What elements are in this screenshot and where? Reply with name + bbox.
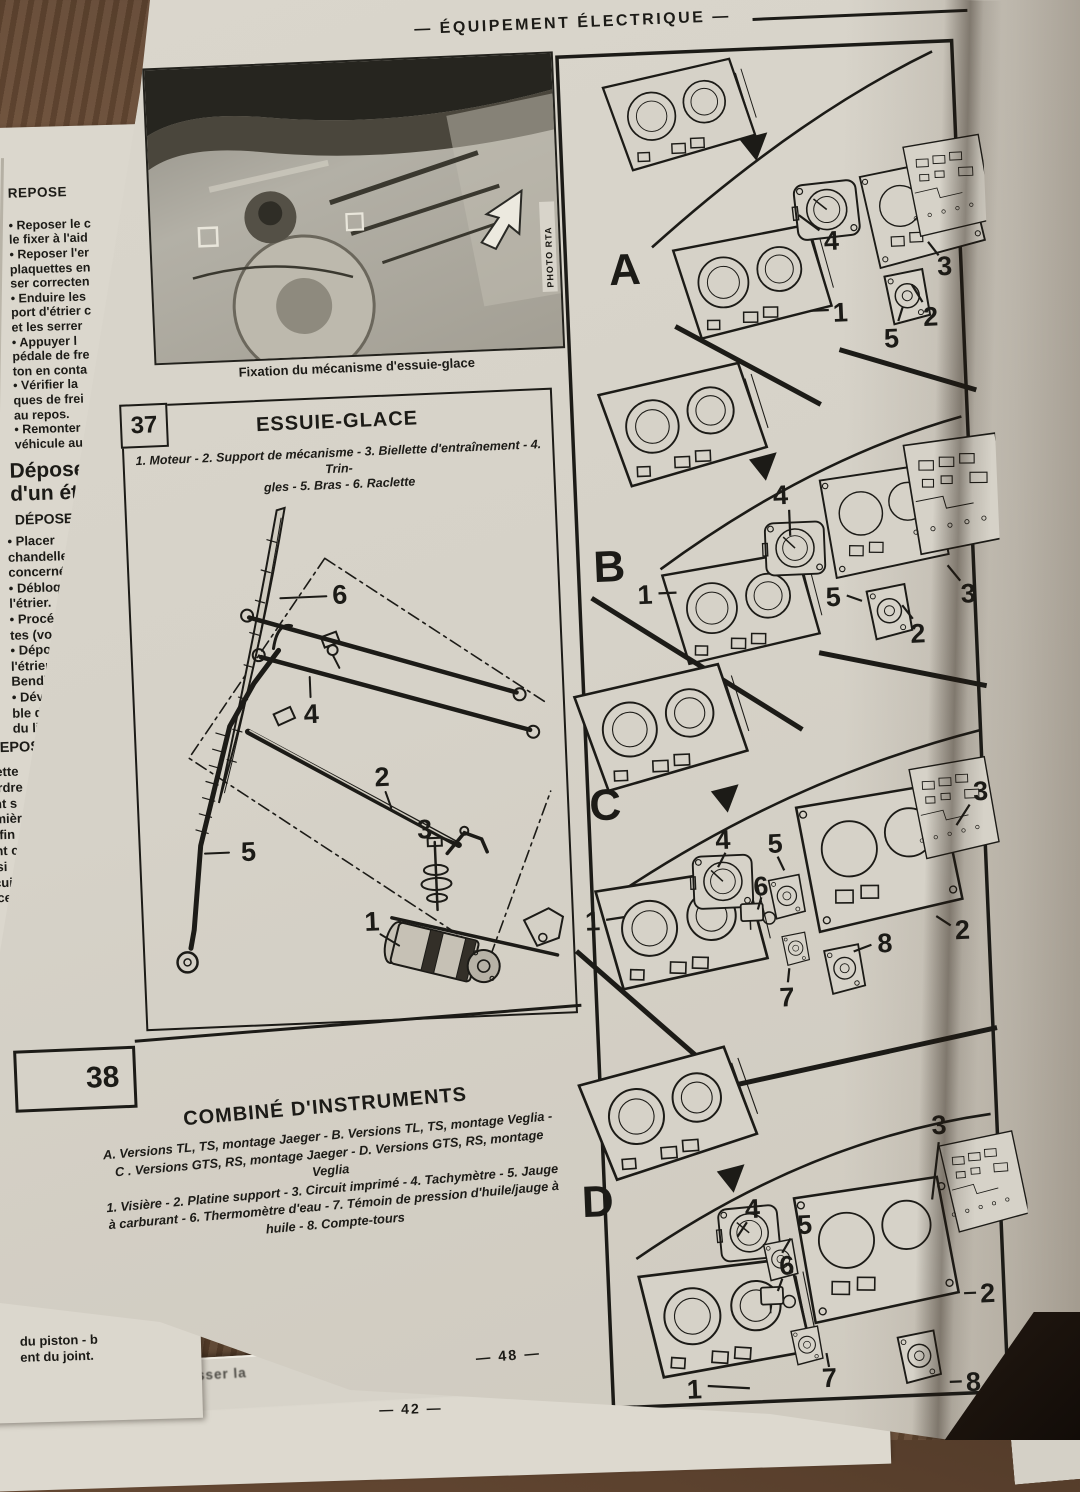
B-label-1: 1 xyxy=(637,580,653,611)
D-label-7: 7 xyxy=(821,1363,837,1394)
figure-38-number: 38 xyxy=(13,1046,137,1113)
windshield-outline xyxy=(181,549,558,968)
C-label-5: 5 xyxy=(767,828,783,859)
wiper-arm-5 xyxy=(164,625,306,973)
label-5: 5 xyxy=(240,836,256,867)
repose-body: • Reposer le c le fixer à l'aid • Repose… xyxy=(8,216,91,451)
C-label-4: 4 xyxy=(715,825,731,856)
photo-marker-square xyxy=(199,228,218,247)
section-label-C: C xyxy=(588,780,622,830)
spindle-stack xyxy=(420,837,453,910)
page-number-42: — 42 — xyxy=(379,1400,443,1418)
label-4: 4 xyxy=(303,699,319,730)
D-label-5: 5 xyxy=(796,1210,812,1241)
label-6: 6 xyxy=(332,579,348,610)
page-edge-line xyxy=(0,158,4,718)
A-label-1: 1 xyxy=(832,297,848,328)
B-label-2: 2 xyxy=(910,618,926,649)
figure-37-title: ESSUIE-GLACE xyxy=(123,402,552,443)
C-label-7: 7 xyxy=(779,982,795,1013)
label-3: 3 xyxy=(417,814,433,845)
section-label-A: A xyxy=(608,245,642,295)
section-label-B: B xyxy=(592,542,626,592)
C-label-8: 8 xyxy=(877,928,893,959)
bottom-fragment: du piston - b ent du joint. xyxy=(20,1332,99,1366)
label-2: 2 xyxy=(374,762,390,793)
C-label-1: 1 xyxy=(585,906,601,937)
C-label-6: 6 xyxy=(753,871,769,902)
A-label-5: 5 xyxy=(883,323,899,354)
D-label-6: 6 xyxy=(779,1250,795,1281)
figure-38-legend: COMBINÉ D'INSTRUMENTS A. Versions TL, TS… xyxy=(90,1075,570,1252)
D-label-1: 1 xyxy=(686,1374,702,1405)
figure-37-box: 37 ESSUIE-GLACE 1. Moteur - 2. Support d… xyxy=(120,388,578,1032)
B-label-4: 4 xyxy=(772,480,788,511)
wiper-diagram: 6 4 2 3 5 1 xyxy=(126,486,571,1013)
D-label-4: 4 xyxy=(744,1194,760,1225)
depose-subheading: DÉPOSE xyxy=(15,510,74,528)
D-label-2: 2 xyxy=(979,1278,995,1309)
photo-wiper-mechanism: PHOTO RTA xyxy=(142,51,565,365)
linkage-rods-4 xyxy=(241,598,540,750)
photo-marker-square-2 xyxy=(346,213,363,230)
photo-content: PHOTO RTA xyxy=(144,53,563,363)
page-number-48: — 48 — xyxy=(438,1342,579,1370)
section-label-D: D xyxy=(581,1177,615,1227)
A-label-4: 4 xyxy=(823,226,839,257)
B-label-5: 5 xyxy=(825,582,841,613)
label-1: 1 xyxy=(364,906,380,937)
header-rule xyxy=(752,9,967,21)
